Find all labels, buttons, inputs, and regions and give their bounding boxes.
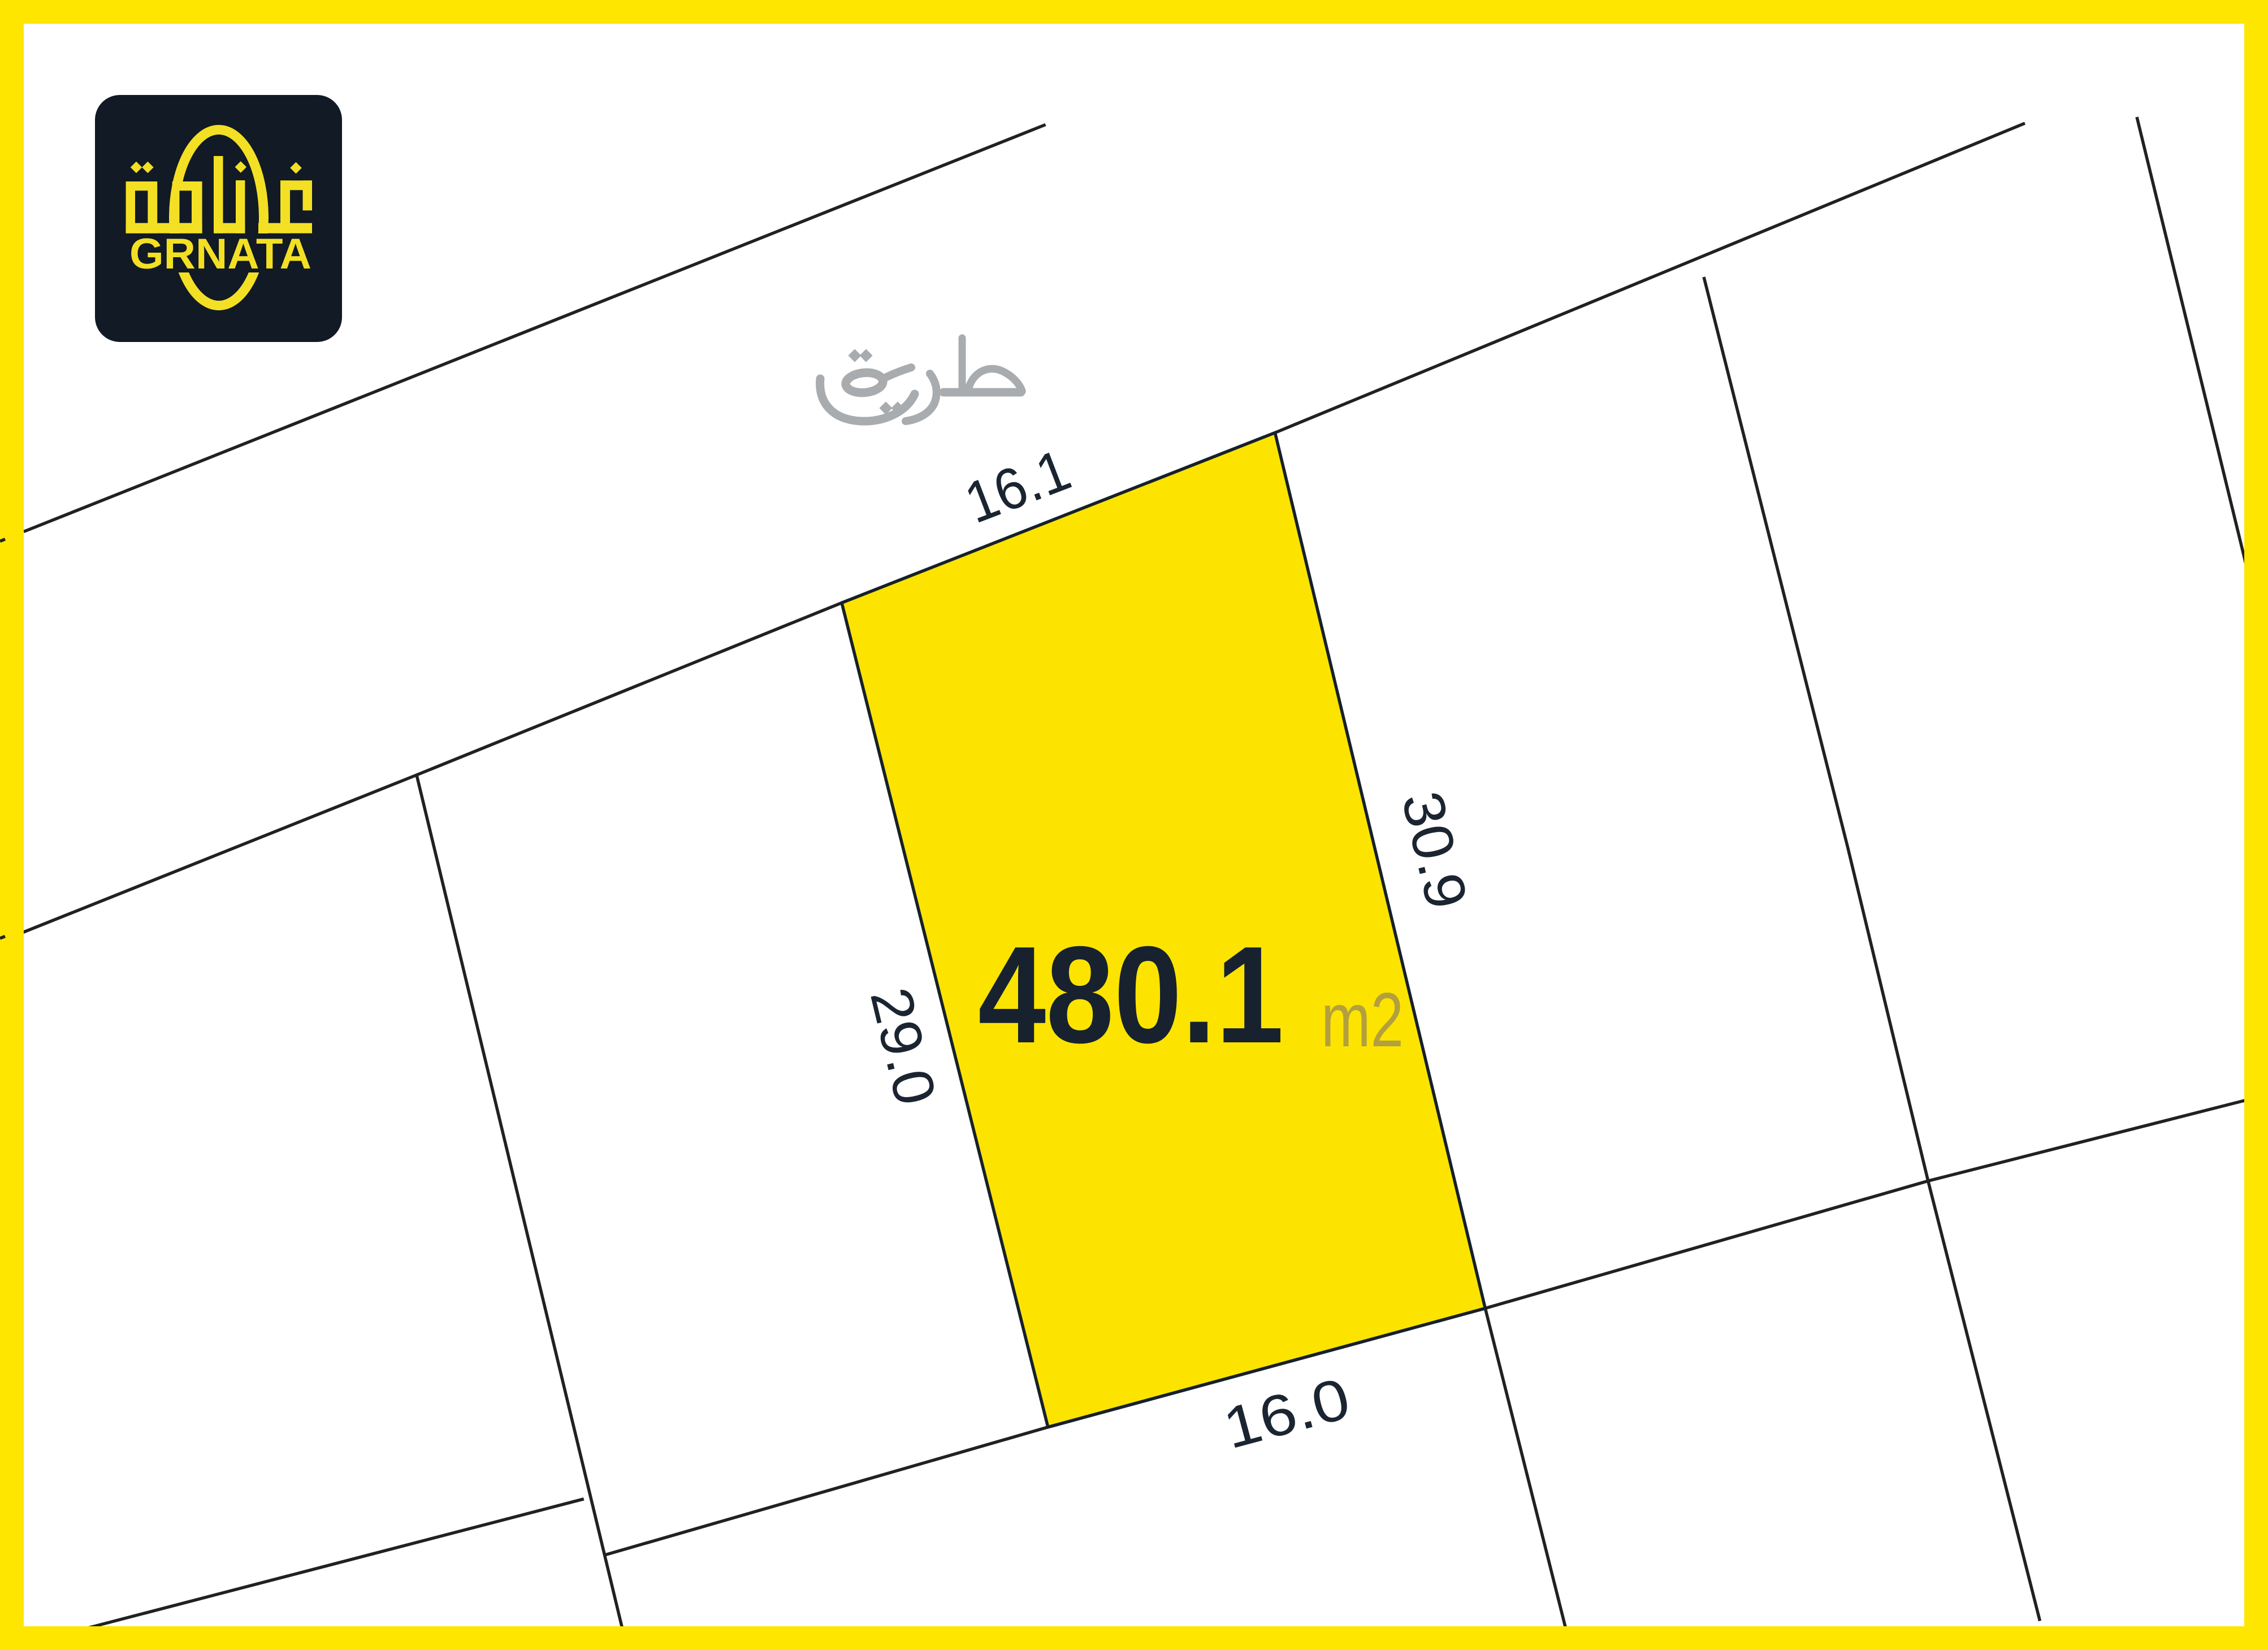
svg-text:GRNATA: GRNATA	[129, 230, 311, 278]
svg-text:m2: m2	[1321, 977, 1404, 1063]
svg-text:480.1: 480.1	[978, 917, 1284, 1072]
